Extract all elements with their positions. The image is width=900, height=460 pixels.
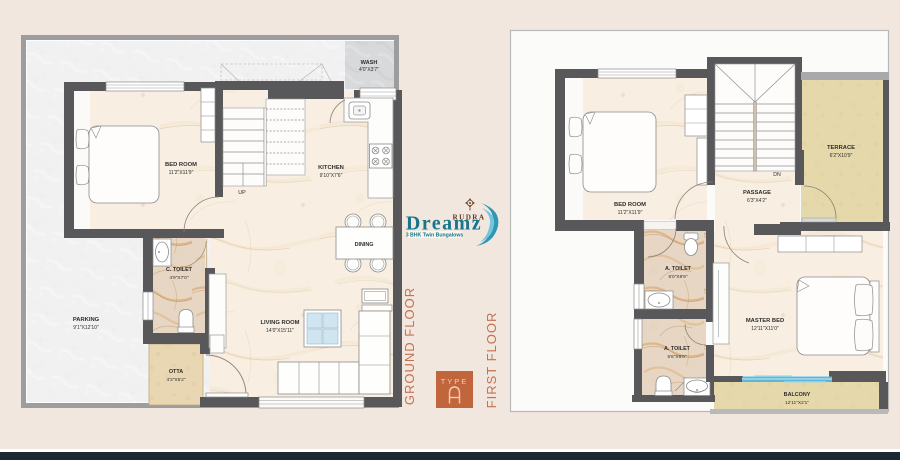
svg-text:MASTER BED: MASTER BED xyxy=(746,318,784,324)
svg-text:KITCHEN: KITCHEN xyxy=(318,165,344,171)
svg-text:12'11"X11'0": 12'11"X11'0" xyxy=(751,326,779,332)
svg-text:11'2"X11'9": 11'2"X11'9" xyxy=(618,210,643,216)
svg-text:BALCONY: BALCONY xyxy=(784,392,811,398)
svg-text:GROUND FLOOR: GROUND FLOOR xyxy=(402,287,417,405)
svg-text:4'3"X5'2": 4'3"X5'2" xyxy=(166,377,185,383)
svg-text:FIRST FLOOR: FIRST FLOOR xyxy=(484,312,499,409)
svg-text:6'2"X10'9": 6'2"X10'9" xyxy=(830,153,853,159)
svg-text:11'2"X11'9": 11'2"X11'9" xyxy=(169,170,194,176)
svg-text:A. TOILET: A. TOILET xyxy=(664,346,691,352)
svg-text:4'9"X7'0": 4'9"X7'0" xyxy=(169,275,188,281)
svg-text:PARKING: PARKING xyxy=(73,317,100,323)
svg-text:TYPE: TYPE xyxy=(441,377,469,386)
svg-text:4'0"X3'7": 4'0"X3'7" xyxy=(359,67,379,73)
svg-text:PASSAGE: PASSAGE xyxy=(743,190,771,196)
svg-text:C. TOILET: C. TOILET xyxy=(166,267,193,273)
svg-text:6'3"X4'2": 6'3"X4'2" xyxy=(747,198,767,204)
svg-text:WASH: WASH xyxy=(361,60,378,66)
svg-text:3 BHK Twin Bungalows: 3 BHK Twin Bungalows xyxy=(406,232,464,238)
svg-text:DN: DN xyxy=(773,172,781,178)
svg-text:BED ROOM: BED ROOM xyxy=(614,202,646,208)
svg-text:14'0"X15'11": 14'0"X15'11" xyxy=(266,328,294,334)
svg-text:BED ROOM: BED ROOM xyxy=(165,162,197,168)
svg-text:9'1"X12'10": 9'1"X12'10" xyxy=(73,325,99,331)
svg-text:A. TOILET: A. TOILET xyxy=(665,266,692,272)
svg-text:DINING: DINING xyxy=(355,242,374,248)
svg-text:12'11"X2'1": 12'11"X2'1" xyxy=(785,400,809,406)
svg-text:5'6"X6'0": 5'6"X6'0" xyxy=(667,354,686,360)
svg-text:9'10"X7'6": 9'10"X7'6" xyxy=(320,173,343,179)
svg-text:5'0"X8'9": 5'0"X8'9" xyxy=(668,274,687,280)
svg-text:OTTA: OTTA xyxy=(169,369,183,375)
svg-text:TERRACE: TERRACE xyxy=(827,145,855,151)
svg-text:UP: UP xyxy=(238,190,246,196)
svg-text:LIVING ROOM: LIVING ROOM xyxy=(261,320,300,326)
